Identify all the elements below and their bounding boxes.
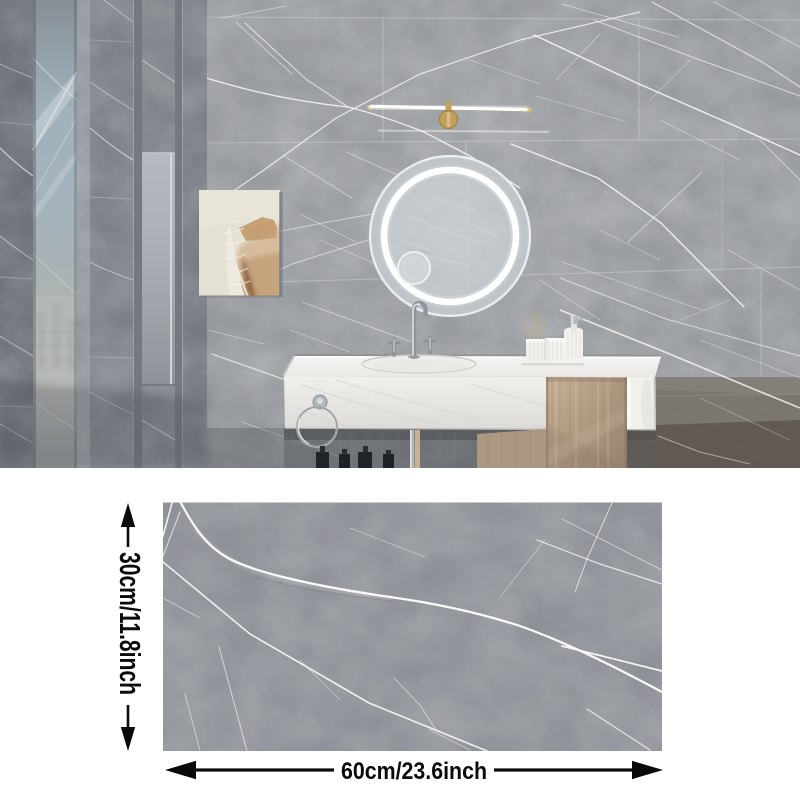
svg-text:30cm/11.8inch: 30cm/11.8inch <box>113 552 145 695</box>
svg-text:60cm/23.6inch: 60cm/23.6inch <box>341 758 487 785</box>
